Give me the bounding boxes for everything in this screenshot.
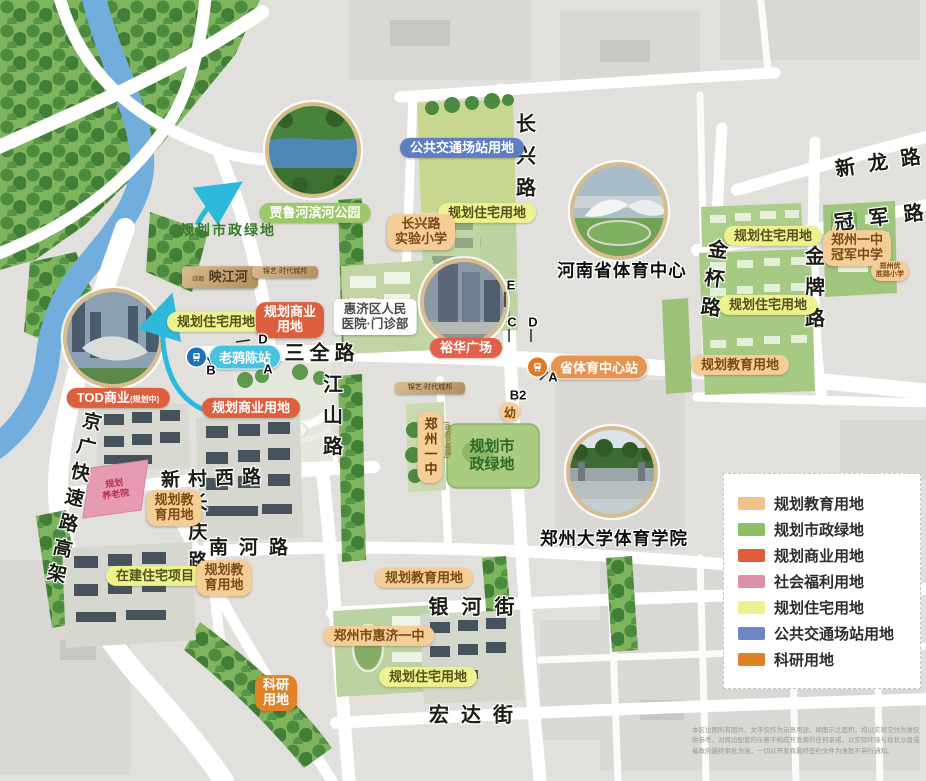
estate-plaque-b: 锦艺·时代城邦 bbox=[395, 382, 465, 394]
edu-line1: 规划教 bbox=[154, 493, 193, 508]
parcel-label-bus-depot: 公共交通场站用地 bbox=[400, 138, 524, 158]
zhengzhou-no1-label: 郑州一中 bbox=[418, 411, 443, 483]
legend-label: 科研用地 bbox=[774, 649, 834, 670]
exit-c: C bbox=[507, 315, 516, 330]
metro-icon bbox=[187, 348, 206, 367]
parcel-label-education-bl2: 规划教 育用地 bbox=[196, 560, 251, 596]
parcel-label-green-box: 规划市 政绿地 bbox=[469, 438, 514, 474]
parcel-label-commercial-station: 规划商业用地 bbox=[202, 398, 300, 418]
plaque-name: 映江河 bbox=[209, 269, 248, 284]
legend-row-transit: 公共交通场站用地 bbox=[738, 623, 920, 644]
henan-sports-center-label: 河南省体育中心 bbox=[557, 258, 687, 283]
parcel-label-residential-bottom: 规划住宅用地 bbox=[379, 667, 477, 687]
hospital-line2: 医院·门诊部 bbox=[342, 317, 409, 332]
legend-swatch-research bbox=[738, 653, 765, 666]
road-label-hongda: 宏达街 bbox=[429, 699, 525, 728]
hospital-label: 惠济区人民 医院·门诊部 bbox=[334, 299, 417, 335]
exit-a-west: A bbox=[263, 362, 272, 377]
legend-swatch-welfare bbox=[738, 575, 765, 588]
tod-text: TOD商业 bbox=[77, 390, 130, 405]
estate-plaque-a: 锦艺·时代城邦 bbox=[252, 266, 318, 278]
green-line2: 政绿地 bbox=[469, 456, 514, 474]
road-label-changxing: 长兴路 bbox=[510, 113, 539, 209]
legend-row-research: 科研用地 bbox=[738, 649, 920, 670]
exit-d-east: D bbox=[528, 315, 537, 330]
changxing-school-label: 长兴路 实验小学 bbox=[387, 214, 455, 250]
exit-e: E bbox=[507, 278, 516, 293]
zhengzhou-no1-note: (政府已挂牌) bbox=[441, 422, 451, 459]
legend-swatch-residential bbox=[738, 601, 765, 614]
commercial-line1: 规划商业 bbox=[264, 305, 316, 320]
legend-row-commercial: 规划商业用地 bbox=[738, 545, 920, 566]
yousheng-school-label: 郑州优 胜路小学 bbox=[871, 261, 909, 281]
sci-line1: 科研 bbox=[263, 678, 289, 693]
legend-label: 规划住宅用地 bbox=[774, 597, 864, 618]
inset-riverside-park bbox=[264, 101, 362, 200]
ys-school-line1: 郑州优 bbox=[876, 263, 904, 271]
exit-b: B bbox=[206, 363, 215, 378]
ys-school-line2: 胜路小学 bbox=[876, 271, 904, 279]
yingjianghe-plaque: 绿都 映江河 bbox=[182, 266, 258, 288]
parcel-label-research: 科研 用地 bbox=[255, 675, 297, 711]
cx-school-line1: 长兴路 bbox=[395, 217, 447, 232]
legend-swatch-education bbox=[738, 497, 765, 510]
commercial-line2: 用地 bbox=[264, 320, 316, 335]
parcel-label-tod: TOD商业(规划中) bbox=[67, 388, 170, 408]
legend-label: 规划市政绿地 bbox=[774, 519, 864, 540]
disclaimer-text: 本区位图所有图片、文字仅作为示意用途，除图示之面积，均以实际交付为准仅供参考，对… bbox=[692, 726, 922, 757]
road-label-xincunxi: 新村西路 bbox=[161, 462, 270, 493]
plaque-brand: 绿都 bbox=[192, 277, 204, 283]
sports-center-station-name: 省体育中心站 bbox=[550, 355, 648, 380]
tod-note: (规划中) bbox=[130, 395, 159, 404]
gj-school-line1: 郑州一中 bbox=[831, 233, 883, 248]
green-line1: 规划市 bbox=[469, 438, 514, 456]
legend-label: 公共交通场站用地 bbox=[774, 623, 894, 644]
legend-label: 规划商业用地 bbox=[774, 545, 864, 566]
legend-swatch-green bbox=[738, 523, 765, 536]
huiji-no1-label: 郑州市惠济一中 bbox=[323, 626, 434, 646]
legend-row-residential: 规划住宅用地 bbox=[738, 597, 920, 618]
inset-yuhua-plaza bbox=[419, 257, 510, 347]
gj-school-line2: 冠军中学 bbox=[831, 248, 883, 263]
metro-icon bbox=[528, 358, 547, 377]
edu-line1: 规划教 bbox=[204, 563, 243, 578]
legend-label: 规划教育用地 bbox=[774, 493, 864, 514]
parcel-label-education-bl1: 规划教 育用地 bbox=[146, 490, 201, 526]
yuhua-plaza-label: 裕华广场 bbox=[430, 338, 502, 358]
sports-center-station: 省体育中心站 bbox=[528, 355, 648, 380]
parcel-label-under-construction: 在建住宅项目 bbox=[106, 566, 204, 586]
parcel-label-welfare: 规划 养老院 bbox=[100, 476, 130, 501]
exit-a-east: A bbox=[548, 370, 557, 385]
riverside-park-label: 贾鲁河滨河公园 bbox=[259, 203, 370, 223]
legend-row-welfare: 社会福利用地 bbox=[738, 571, 920, 592]
legend-row-green: 规划市政绿地 bbox=[738, 519, 920, 540]
road-label-sanquan: 三全路 bbox=[285, 337, 360, 366]
legend-swatch-transit bbox=[738, 627, 765, 640]
parcel-label-residential-right1: 规划住宅用地 bbox=[724, 226, 822, 246]
parcel-label-residential-left: 规划住宅用地 bbox=[167, 312, 265, 332]
exit-d-west: D bbox=[258, 332, 267, 347]
parcel-label-education-bottom: 规划教育用地 bbox=[375, 568, 473, 588]
kindergarten-label: 幼 bbox=[500, 402, 520, 422]
sci-line2: 用地 bbox=[263, 693, 289, 708]
cx-school-line2: 实验小学 bbox=[395, 232, 447, 247]
road-label-nanhe: 南河路 bbox=[209, 533, 299, 560]
legend-swatch-commercial bbox=[738, 549, 765, 562]
inset-sports-college bbox=[565, 425, 659, 519]
zzu-sports-college-label: 郑州大学体育学院 bbox=[540, 526, 688, 551]
edu-line2: 育用地 bbox=[154, 508, 193, 523]
road-label-jiangshan: 江山路 bbox=[317, 374, 346, 467]
legend-label: 社会福利用地 bbox=[774, 571, 864, 592]
road-label-yinhe: 银河街 bbox=[429, 591, 528, 620]
planning-map: 长兴路 新龙路 冠军路 金杯路 金牌路 三全路 江山路 新村西路 长庆路 南河路… bbox=[0, 0, 926, 781]
exit-b2: B2 bbox=[510, 388, 527, 403]
parcel-label-green-topleft: 规划市政绿地 bbox=[180, 220, 276, 240]
hospital-line1: 惠济区人民 bbox=[342, 302, 409, 317]
inset-tod bbox=[62, 287, 164, 390]
legend-row-education: 规划教育用地 bbox=[738, 493, 920, 514]
legend: 规划教育用地 规划市政绿地 规划商业用地 社会福利用地 规划住宅用地 公共交通场… bbox=[723, 473, 921, 689]
inset-sports-center bbox=[569, 161, 669, 261]
parcel-label-residential-right2: 规划住宅用地 bbox=[719, 295, 817, 315]
edu-line2: 育用地 bbox=[204, 578, 243, 593]
parcel-label-education-right: 规划教育用地 bbox=[691, 355, 789, 375]
